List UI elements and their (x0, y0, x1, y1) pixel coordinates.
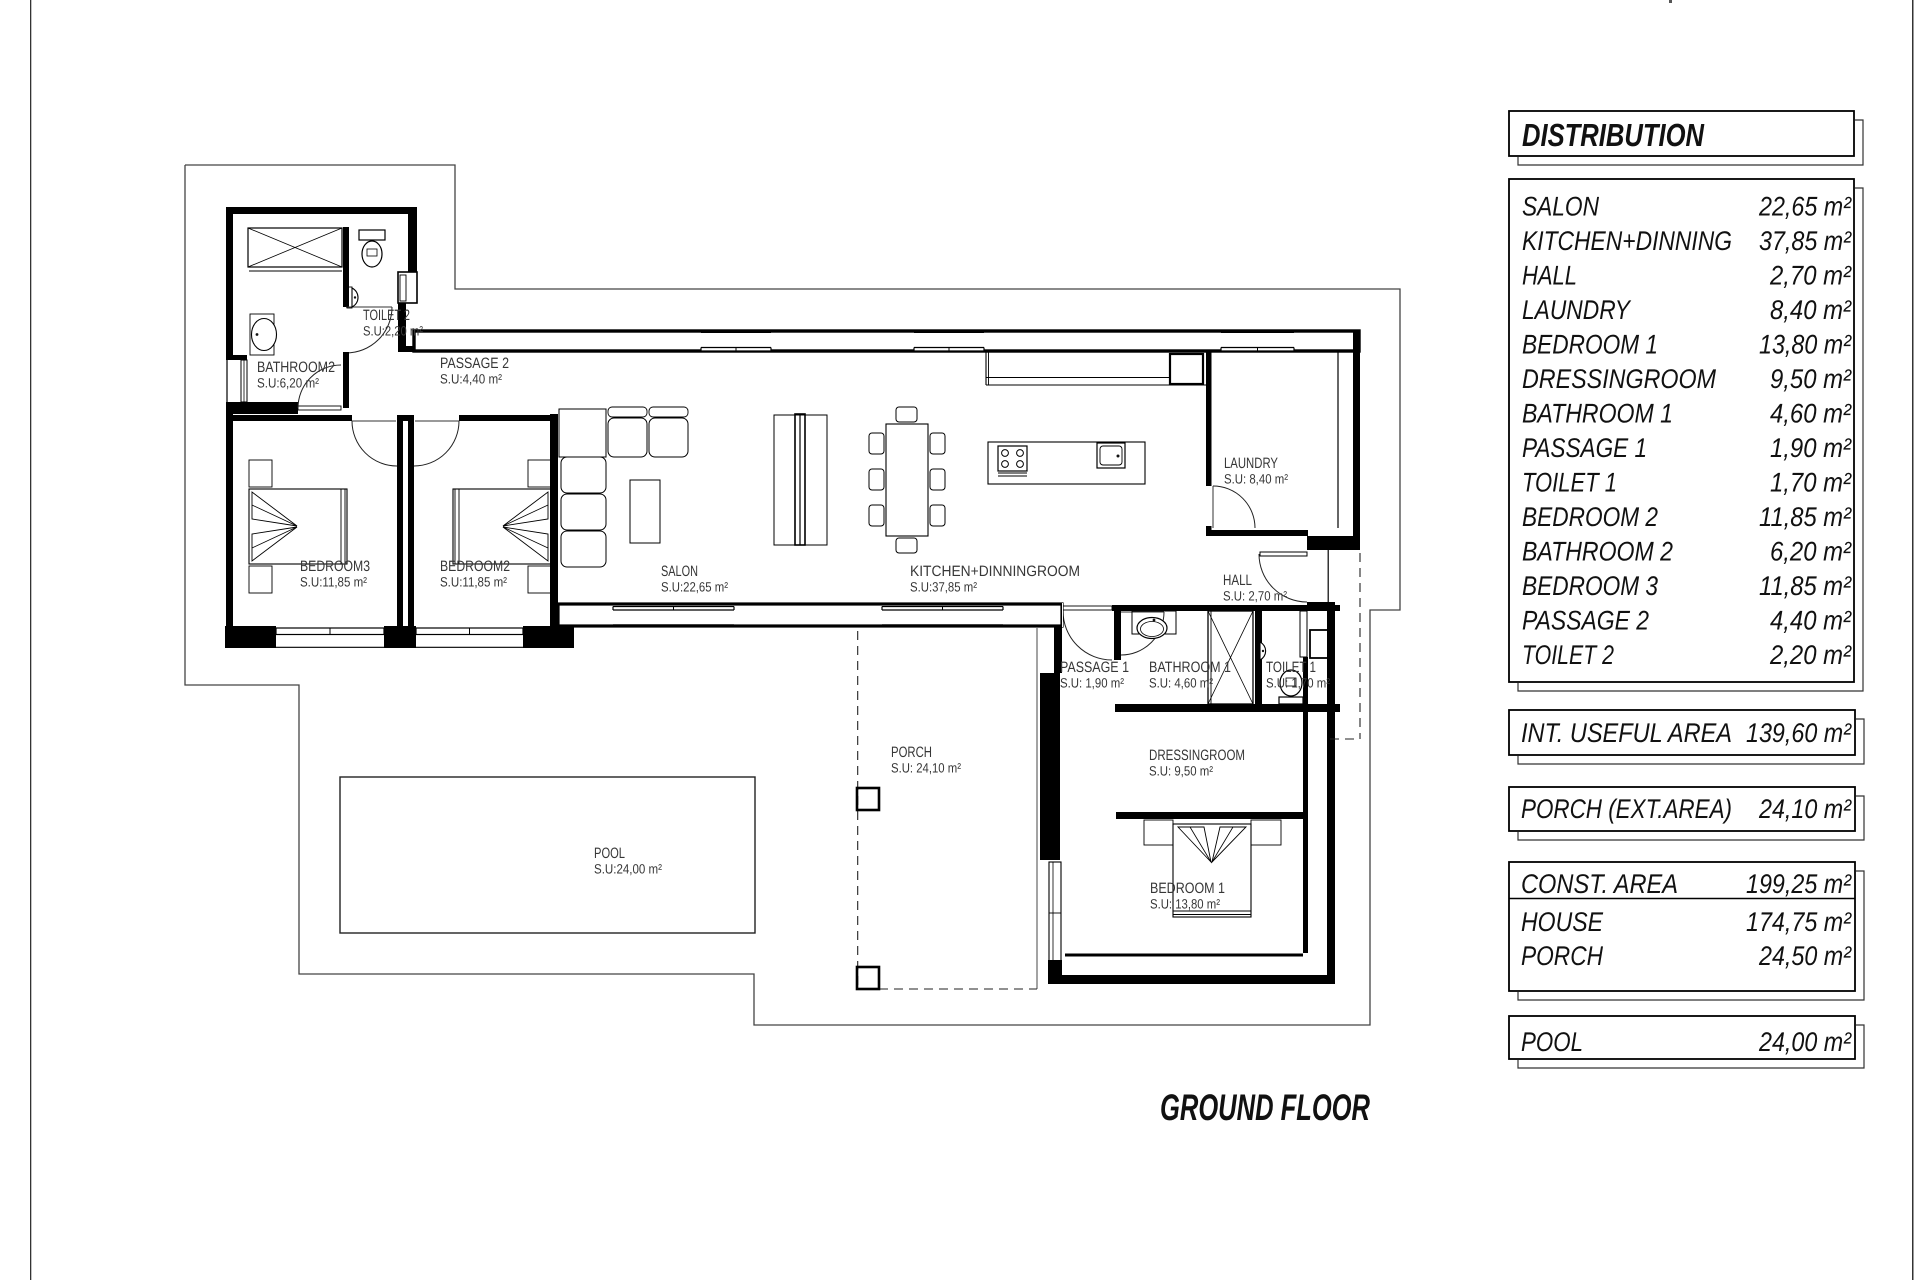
svg-text:LAUNDRY: LAUNDRY (1224, 455, 1278, 472)
svg-text:S.U:37,85 m²: S.U:37,85 m² (910, 580, 977, 595)
svg-text:S.U: 2,70 m²: S.U: 2,70 m² (1223, 589, 1287, 604)
svg-text:GROUND FLOOR: GROUND FLOOR (1160, 1087, 1370, 1128)
svg-text:HALL: HALL (1223, 572, 1252, 589)
svg-text:LAUNDRY: LAUNDRY (1522, 295, 1632, 325)
svg-text:KITCHEN+DINNINGROOM: KITCHEN+DINNINGROOM (910, 563, 1080, 580)
svg-text:4,60 m²: 4,60 m² (1770, 399, 1852, 429)
svg-text:BEDROOM3: BEDROOM3 (300, 558, 370, 575)
svg-text:BEDROOM 1: BEDROOM 1 (1150, 880, 1225, 897)
svg-text:PORCH: PORCH (1521, 941, 1603, 971)
svg-text:DISTRIBUTION: DISTRIBUTION (1522, 117, 1705, 153)
svg-text:199,25 m²: 199,25 m² (1746, 869, 1852, 899)
svg-text:BATHROOM2: BATHROOM2 (257, 359, 335, 376)
svg-text:174,75 m²: 174,75 m² (1746, 907, 1852, 937)
svg-text:2,20 m²: 2,20 m² (1769, 640, 1852, 670)
svg-text:11,85 m²: 11,85 m² (1759, 571, 1852, 601)
svg-text:PASSAGE 1: PASSAGE 1 (1060, 659, 1129, 676)
svg-text:8,40 m²: 8,40 m² (1770, 295, 1852, 325)
svg-text:DRESSINGROOM: DRESSINGROOM (1149, 747, 1245, 764)
svg-text:S.U:6,20 m²: S.U:6,20 m² (257, 376, 319, 391)
svg-text:HALL: HALL (1522, 261, 1577, 291)
svg-text:6,20 m²: 6,20 m² (1770, 537, 1852, 567)
svg-text:POOL: POOL (1521, 1027, 1583, 1057)
svg-text:S.U: 24,10 m²: S.U: 24,10 m² (891, 761, 961, 776)
svg-text:S.U: 4,60 m²: S.U: 4,60 m² (1149, 676, 1213, 691)
svg-text:SALON: SALON (661, 563, 698, 580)
svg-text:S.U:11,85 m²: S.U:11,85 m² (440, 575, 507, 590)
svg-text:KITCHEN+DINNING: KITCHEN+DINNING (1522, 226, 1732, 256)
svg-text:4,40 m²: 4,40 m² (1770, 606, 1852, 636)
svg-text:DRESSINGROOM: DRESSINGROOM (1522, 364, 1716, 394)
svg-text:BEDROOM2: BEDROOM2 (440, 558, 510, 575)
svg-text:S.U:22,65 m²: S.U:22,65 m² (661, 580, 728, 595)
svg-text:S.U: 1,70 m²: S.U: 1,70 m² (1266, 676, 1330, 691)
svg-text:CONST. AREA: CONST. AREA (1521, 869, 1678, 899)
svg-text:S.U: 1,90 m²: S.U: 1,90 m² (1060, 676, 1124, 691)
svg-text:TOILET 2: TOILET 2 (1522, 640, 1614, 670)
svg-text:S.U: 8,40 m²: S.U: 8,40 m² (1224, 472, 1288, 487)
svg-text:BEDROOM 2: BEDROOM 2 (1522, 502, 1658, 532)
svg-text:PASSAGE 2: PASSAGE 2 (1522, 606, 1649, 636)
svg-text:BATHROOM 1: BATHROOM 1 (1149, 659, 1231, 676)
svg-text:TOILET 1: TOILET 1 (1266, 659, 1316, 676)
svg-text:139,60 m²: 139,60 m² (1746, 718, 1852, 748)
svg-text:TOILET 2: TOILET 2 (363, 307, 410, 324)
svg-text:9,50 m²: 9,50 m² (1770, 364, 1852, 394)
svg-text:S.U: 9,50 m²: S.U: 9,50 m² (1149, 764, 1213, 779)
svg-text:1,90 m²: 1,90 m² (1770, 433, 1852, 463)
svg-text:S.U:11,85 m²: S.U:11,85 m² (300, 575, 367, 590)
svg-text:24,50 m²: 24,50 m² (1758, 941, 1852, 971)
svg-text:11,85 m²: 11,85 m² (1759, 502, 1852, 532)
svg-text:PASSAGE 2: PASSAGE 2 (440, 355, 509, 372)
svg-text:13,80 m²: 13,80 m² (1759, 330, 1852, 360)
svg-text:BEDROOM 1: BEDROOM 1 (1522, 330, 1658, 360)
svg-text:PORCH: PORCH (891, 744, 932, 761)
svg-text:POOL: POOL (594, 845, 625, 862)
svg-text:S.U:4,40 m²: S.U:4,40 m² (440, 372, 502, 387)
svg-text:TOILET 1: TOILET 1 (1522, 468, 1617, 498)
svg-text:24,10 m²: 24,10 m² (1758, 794, 1852, 824)
svg-text:INT. USEFUL AREA: INT. USEFUL AREA (1521, 718, 1732, 748)
svg-text:S.U:24,00 m²: S.U:24,00 m² (594, 862, 662, 877)
svg-text:24,00 m²: 24,00 m² (1758, 1027, 1852, 1057)
svg-text:BEDROOM 3: BEDROOM 3 (1522, 571, 1658, 601)
svg-text:BATHROOM 1: BATHROOM 1 (1522, 399, 1673, 429)
svg-text:37,85 m²: 37,85 m² (1759, 226, 1852, 256)
svg-text:PASSAGE 1: PASSAGE 1 (1522, 433, 1647, 463)
svg-text:S.U: 13,80 m²: S.U: 13,80 m² (1150, 897, 1220, 912)
svg-text:2,70 m²: 2,70 m² (1769, 261, 1852, 291)
svg-text:SALON: SALON (1522, 192, 1599, 222)
svg-text:1,70 m²: 1,70 m² (1770, 468, 1852, 498)
svg-text:BATHROOM 2: BATHROOM 2 (1522, 537, 1673, 567)
svg-text:PORCH (EXT.AREA): PORCH (EXT.AREA) (1521, 794, 1732, 824)
svg-text:S.U:2,20 m²: S.U:2,20 m² (363, 324, 423, 339)
svg-text:HOUSE: HOUSE (1521, 907, 1604, 937)
svg-text:22,65 m²: 22,65 m² (1758, 192, 1852, 222)
